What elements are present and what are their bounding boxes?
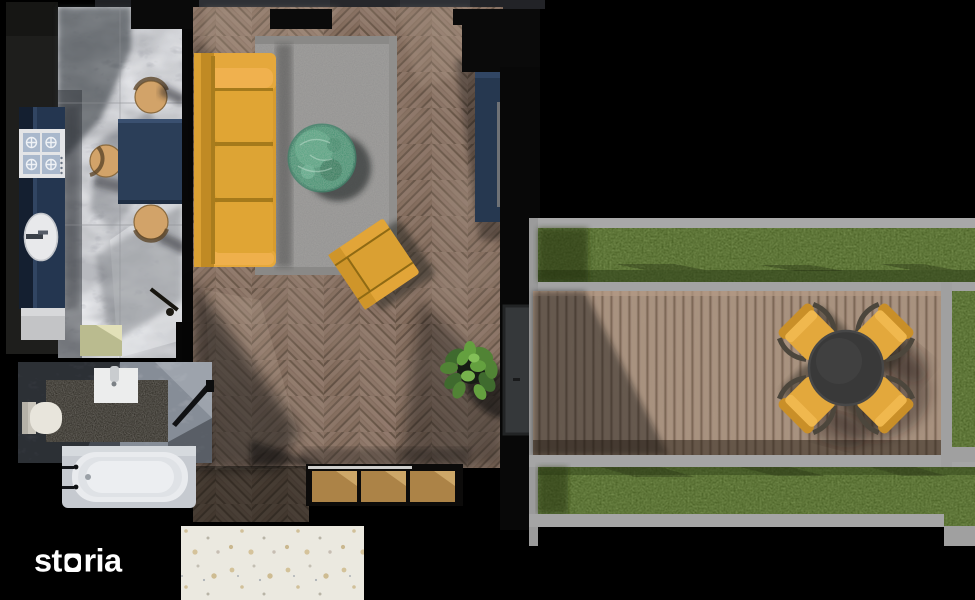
svg-text:st: st (34, 543, 62, 579)
svg-text:ria: ria (84, 543, 123, 579)
